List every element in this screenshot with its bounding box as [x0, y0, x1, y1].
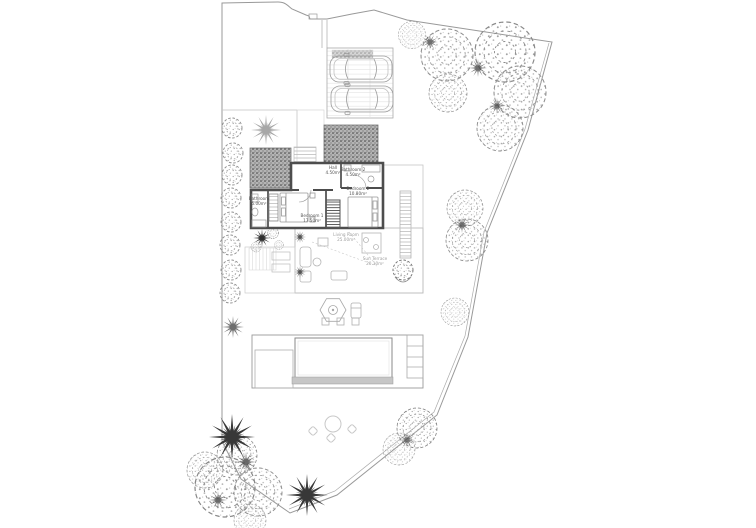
- room-label-terrace: Sun Terrace 20.10m²: [363, 257, 388, 267]
- gravel-roof-2: [324, 125, 378, 163]
- room-area: 5.00m²: [249, 202, 270, 207]
- pool-area: [252, 335, 423, 388]
- spiky-tree: [251, 115, 281, 145]
- garden-furniture: [320, 299, 361, 325]
- palm-tree: [286, 474, 328, 516]
- room-label-bedroom2: Bedroom 2 10.80m²: [347, 187, 370, 197]
- gravel-strip: [332, 50, 373, 58]
- interior-staircase: [326, 200, 340, 228]
- stepping-stones: [308, 416, 357, 443]
- tree-canopy: [429, 74, 467, 112]
- trees-bottom-left: [187, 414, 328, 528]
- room-label-bathroom2: Bathroom 2 4.50m²: [341, 168, 366, 178]
- driveway-entrance-lines: [322, 20, 327, 48]
- wardrobe: [269, 194, 278, 221]
- tree-canopy: [421, 29, 473, 81]
- room-area: 4.50m²: [341, 173, 366, 178]
- spiky-bush: [222, 316, 244, 338]
- room-area: 25.00m²: [333, 238, 359, 243]
- swimming-pool: [295, 338, 392, 378]
- room-label-bathroom1: Bathroom 5.00m²: [249, 197, 270, 207]
- room-area: 20.10m²: [363, 262, 388, 267]
- trees-mid-right: [441, 190, 488, 326]
- room-label-hall: Hall 4.50m²: [325, 166, 340, 176]
- trees-bottom-right: [383, 408, 437, 465]
- terrace-deck: [245, 247, 295, 293]
- gravel-roof-1: [250, 148, 291, 188]
- room-area: 10.80m²: [347, 192, 370, 197]
- pool-overflow-band: [292, 377, 393, 384]
- potted-plant: [393, 260, 413, 280]
- room-label-bedroom1: Bedroom 1 17.50m²: [301, 214, 324, 224]
- tree-canopy: [441, 298, 469, 326]
- exterior-staircase: [400, 191, 411, 258]
- sun-lounger: [351, 303, 361, 318]
- room-area: 17.50m²: [301, 219, 324, 224]
- driveway: [327, 48, 393, 118]
- pool-steps: [407, 335, 423, 378]
- tree-canopy: [446, 219, 488, 261]
- room-area: 4.50m²: [325, 171, 340, 176]
- room-label-living: Living Room 25.00m²: [333, 233, 359, 243]
- tree-canopy: [477, 105, 523, 151]
- site-plan-drawing: Hall 4.50m² Bathroom 2 4.50m² Bedroom 2 …: [0, 0, 756, 528]
- pool-side-deck: [255, 350, 293, 388]
- tree-canopy: [398, 21, 425, 48]
